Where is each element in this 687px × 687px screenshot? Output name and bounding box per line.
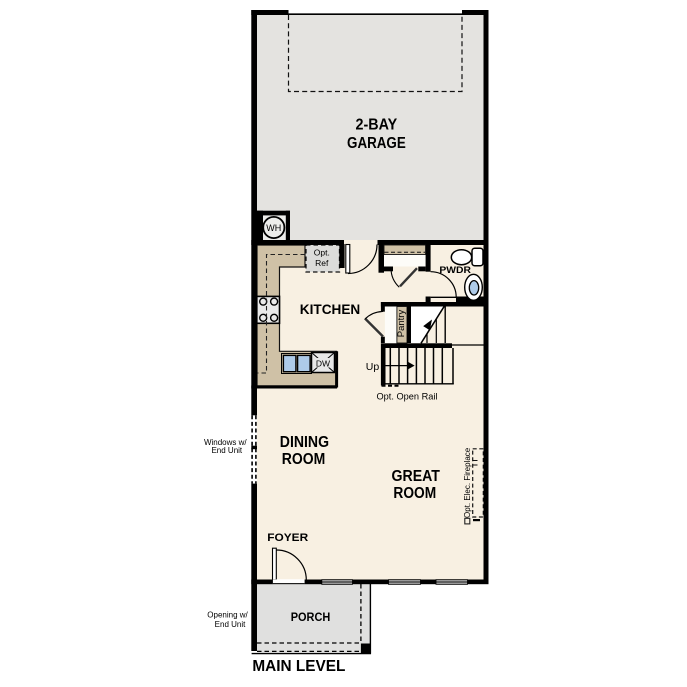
- svg-text:End Unit: End Unit: [215, 620, 246, 629]
- svg-text:MAIN LEVEL: MAIN LEVEL: [252, 658, 345, 675]
- svg-text:GREAT: GREAT: [392, 468, 441, 485]
- svg-text:Ref: Ref: [315, 258, 329, 268]
- svg-text:PORCH: PORCH: [291, 612, 331, 624]
- svg-text:Opt.: Opt.: [314, 247, 330, 257]
- svg-text:Opt. Elec. Fireplace: Opt. Elec. Fireplace: [463, 447, 472, 518]
- svg-text:Opt. Open Rail: Opt. Open Rail: [377, 391, 438, 402]
- svg-text:Up: Up: [366, 361, 380, 373]
- svg-text:WH: WH: [266, 223, 281, 233]
- svg-text:DW: DW: [316, 358, 330, 368]
- svg-text:ROOM: ROOM: [393, 485, 436, 502]
- svg-text:Opening w/: Opening w/: [207, 611, 248, 620]
- svg-text:ROOM: ROOM: [282, 451, 326, 468]
- svg-text:DINING: DINING: [280, 434, 329, 451]
- svg-text:End Unit: End Unit: [211, 446, 242, 455]
- svg-text:GARAGE: GARAGE: [347, 135, 406, 152]
- svg-text:2-BAY: 2-BAY: [356, 116, 398, 133]
- svg-text:PWDR: PWDR: [439, 265, 471, 276]
- svg-text:KITCHEN: KITCHEN: [300, 302, 360, 317]
- svg-text:Pantry: Pantry: [396, 310, 407, 338]
- svg-text:FOYER: FOYER: [267, 532, 308, 544]
